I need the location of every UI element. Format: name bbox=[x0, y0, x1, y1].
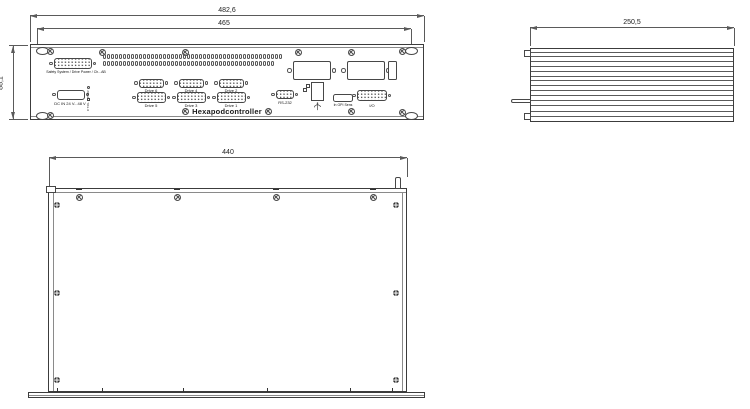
jack-screw-icon bbox=[172, 96, 176, 100]
vent-slot bbox=[147, 61, 150, 66]
edge-mark bbox=[267, 388, 268, 392]
vent-slot bbox=[159, 54, 162, 59]
vent-slot bbox=[103, 61, 106, 66]
vent-slot bbox=[279, 54, 282, 59]
dim-label: 465 bbox=[216, 20, 232, 27]
vent-slot bbox=[251, 61, 254, 66]
chassis-screw bbox=[76, 194, 83, 201]
technical-drawing-page: { "drawing": { "product_label": "Hexapod… bbox=[0, 0, 750, 409]
panel-screw bbox=[47, 112, 54, 119]
vent-slot bbox=[211, 54, 214, 59]
safety-system-connector bbox=[49, 58, 96, 69]
dim-label: 482,6 bbox=[216, 7, 238, 14]
safety-system-label: Safety System / Drive Power / Ch...AB bbox=[46, 71, 106, 75]
vent-slot bbox=[259, 61, 262, 66]
dsub15-body bbox=[217, 92, 246, 103]
ctrl-led-label: CTRL bbox=[87, 102, 90, 111]
jack-screw-icon bbox=[52, 93, 56, 97]
fin-line bbox=[531, 90, 733, 91]
drive-label: Drive 5 bbox=[145, 104, 158, 108]
chassis-screw bbox=[54, 202, 60, 208]
arrow-right-icon bbox=[404, 27, 411, 31]
chassis-screw bbox=[174, 194, 181, 201]
vent-slot bbox=[235, 61, 238, 66]
pwr-led-label: PWR bbox=[87, 90, 90, 98]
arrow-left-icon bbox=[49, 156, 56, 160]
vent-slot bbox=[199, 54, 202, 59]
vent-slot bbox=[247, 54, 250, 59]
vent-slot bbox=[167, 61, 170, 66]
fin-line bbox=[531, 80, 733, 81]
ctrl-led bbox=[87, 98, 90, 101]
extension-line bbox=[49, 158, 50, 186]
usb-icon bbox=[313, 102, 322, 111]
chassis-screw bbox=[370, 194, 377, 201]
rs232-port bbox=[271, 90, 298, 99]
panel-screw bbox=[399, 48, 406, 55]
chassis-screw bbox=[393, 377, 399, 383]
jack-screw-icon bbox=[93, 62, 97, 66]
vent-slot bbox=[163, 61, 166, 66]
jack-screw-icon bbox=[207, 96, 211, 100]
fin-line bbox=[531, 71, 733, 72]
drive-connector bbox=[172, 92, 210, 103]
vent-slot bbox=[203, 61, 206, 66]
chassis-line bbox=[531, 116, 733, 117]
fin-line bbox=[531, 56, 733, 57]
vent-slot bbox=[191, 54, 194, 59]
jack-screw-icon bbox=[165, 81, 169, 85]
extension-line bbox=[9, 119, 28, 120]
dsub15-body bbox=[357, 90, 387, 101]
gpi-label: In GPI Sens bbox=[334, 104, 353, 108]
edge-mark bbox=[350, 388, 351, 392]
vent-slot bbox=[187, 61, 190, 66]
vent-slot bbox=[227, 54, 230, 59]
side-view: 250,5 bbox=[500, 0, 750, 140]
vent-slot bbox=[131, 54, 134, 59]
vent-slot bbox=[255, 61, 258, 66]
fin-line bbox=[531, 85, 733, 86]
jack-screw-icon bbox=[247, 96, 251, 100]
vent-slot bbox=[139, 61, 142, 66]
edge-mark bbox=[174, 189, 180, 190]
arrow-left-icon bbox=[530, 26, 537, 30]
mounting-tab bbox=[524, 50, 531, 57]
vent-slot bbox=[191, 61, 194, 66]
chassis-screw bbox=[393, 202, 399, 208]
vent-slot bbox=[207, 54, 210, 59]
mounting-hole bbox=[405, 112, 418, 120]
motor-connector bbox=[287, 61, 336, 80]
vent-slot bbox=[131, 61, 134, 66]
motor-connector bbox=[341, 61, 390, 80]
bottom-chassis-outline bbox=[48, 188, 407, 392]
rear-pin bbox=[511, 99, 531, 103]
extension-line bbox=[530, 28, 531, 46]
vent-slot bbox=[231, 61, 234, 66]
fin-line bbox=[531, 95, 733, 96]
dim-front-overall-width: 482,6 bbox=[30, 9, 424, 16]
vent-slot bbox=[155, 61, 158, 66]
vent-slot bbox=[151, 54, 154, 59]
vent-slot bbox=[143, 61, 146, 66]
jack-screw-icon bbox=[245, 81, 249, 85]
vent-slot bbox=[255, 54, 258, 59]
vent-slot bbox=[227, 61, 230, 66]
cooling-fins bbox=[531, 56, 733, 106]
vent-slot bbox=[175, 61, 178, 66]
arrow-left-icon bbox=[37, 27, 44, 31]
corner-notch bbox=[46, 186, 56, 193]
jack-screw-icon bbox=[287, 68, 292, 73]
edge-mark bbox=[76, 189, 82, 190]
jack-screw-icon bbox=[214, 81, 218, 85]
arrow-right-icon bbox=[417, 14, 424, 18]
jack-screw-icon bbox=[174, 81, 178, 85]
vent-slot bbox=[251, 54, 254, 59]
panel-screw bbox=[348, 49, 355, 56]
jack-screw-icon bbox=[212, 96, 216, 100]
vent-slot bbox=[239, 61, 242, 66]
dsub9-body bbox=[219, 79, 244, 88]
io-port bbox=[352, 90, 391, 101]
jack-screw-icon bbox=[205, 81, 209, 85]
dim-label: 440 bbox=[220, 149, 236, 156]
rs232-label: RS-232 bbox=[278, 101, 292, 105]
vent-slot bbox=[267, 61, 270, 66]
dim-front-mount-width: 465 bbox=[37, 22, 411, 29]
drive-connector bbox=[134, 78, 168, 88]
vent-slot bbox=[203, 54, 206, 59]
panel-screw bbox=[399, 109, 406, 116]
vent-slot bbox=[147, 54, 150, 59]
vent-slot bbox=[243, 54, 246, 59]
vent-slot bbox=[211, 61, 214, 66]
vent-slot bbox=[219, 61, 222, 66]
vent-slot bbox=[267, 54, 270, 59]
dsub-body bbox=[57, 90, 85, 100]
dsub15-body bbox=[177, 92, 206, 103]
chassis-top-line bbox=[531, 52, 733, 53]
vent-slot bbox=[223, 54, 226, 59]
edge-mark bbox=[370, 189, 376, 190]
drive-connector bbox=[132, 92, 170, 103]
dsub9-body bbox=[276, 90, 294, 99]
rect-connector-body bbox=[347, 61, 385, 80]
arrow-down-icon bbox=[11, 112, 15, 119]
panel-screw bbox=[265, 108, 272, 115]
jack-screw-icon bbox=[352, 94, 356, 98]
jack-screw-icon bbox=[295, 93, 299, 97]
fin-line bbox=[531, 76, 733, 77]
pwr-led bbox=[87, 86, 90, 89]
dsub9-body bbox=[179, 79, 204, 88]
extension-line bbox=[734, 28, 735, 46]
vent-slot bbox=[215, 61, 218, 66]
vent-slot bbox=[123, 54, 126, 59]
vent-slot bbox=[183, 54, 186, 59]
jack-screw-icon bbox=[132, 96, 136, 100]
vent-slot bbox=[259, 54, 262, 59]
vent-slot bbox=[187, 54, 190, 59]
extension-line bbox=[407, 158, 408, 177]
vent-slot bbox=[171, 54, 174, 59]
front-view: 482,6 465 88,1 Safety bbox=[0, 0, 470, 130]
mounting-tab bbox=[524, 113, 531, 120]
edge-mark bbox=[57, 388, 58, 392]
vent-slot bbox=[139, 54, 142, 59]
mounting-hole bbox=[405, 47, 418, 55]
chassis-inner-line bbox=[402, 192, 403, 391]
vent-slot bbox=[127, 61, 130, 66]
vent-slot bbox=[123, 61, 126, 66]
dim-bottom-width: 440 bbox=[49, 151, 407, 158]
vent-slot bbox=[107, 54, 110, 59]
vent-slot bbox=[215, 54, 218, 59]
dsub9-body bbox=[139, 79, 164, 88]
vent-slot bbox=[231, 54, 234, 59]
dc-in-label: DC IN 24 V...48 V bbox=[54, 102, 85, 106]
drive-connector bbox=[174, 78, 208, 88]
vent-slot bbox=[111, 54, 114, 59]
vent-slot bbox=[263, 54, 266, 59]
product-title: Hexapodcontroller bbox=[192, 107, 262, 116]
flange-inner-line bbox=[29, 395, 424, 396]
vent-slot bbox=[263, 61, 266, 66]
vent-slot bbox=[107, 61, 110, 66]
chassis-screw bbox=[393, 290, 399, 296]
vent-slot bbox=[143, 54, 146, 59]
usb-port bbox=[311, 82, 324, 101]
arrow-right-icon bbox=[400, 156, 407, 160]
vent-slot bbox=[119, 54, 122, 59]
vent-slot bbox=[111, 61, 114, 66]
jack-screw-icon bbox=[388, 94, 392, 98]
dim-label: 250,5 bbox=[621, 19, 643, 26]
vent-slot bbox=[247, 61, 250, 66]
chassis-screw bbox=[54, 290, 60, 296]
dc-in-connector bbox=[52, 89, 89, 100]
dsub15-body bbox=[137, 92, 166, 103]
jack-screw-icon bbox=[341, 68, 346, 73]
vent-slot bbox=[103, 54, 106, 59]
panel-bottom-inner-line bbox=[31, 116, 423, 117]
vent-slot bbox=[271, 54, 274, 59]
jack-screw-icon bbox=[49, 62, 53, 66]
vent-slot bbox=[159, 61, 162, 66]
jack-screw-icon bbox=[332, 68, 337, 73]
rect-connector-body bbox=[293, 61, 331, 80]
chassis-screw bbox=[273, 194, 280, 201]
io-label: I/O bbox=[369, 104, 374, 108]
power-switch bbox=[388, 61, 397, 80]
vent-slot bbox=[115, 54, 118, 59]
dim-side-depth: 250,5 bbox=[530, 21, 734, 28]
vent-slot bbox=[171, 61, 174, 66]
vent-slot bbox=[239, 54, 242, 59]
vent-slot bbox=[243, 61, 246, 66]
led-square bbox=[303, 88, 307, 92]
bottom-view: 440 bbox=[0, 145, 450, 409]
edge-mark bbox=[273, 189, 279, 190]
panel-screw bbox=[182, 108, 189, 115]
vent-slot bbox=[223, 61, 226, 66]
panel-screw bbox=[47, 48, 54, 55]
panel-screw bbox=[295, 49, 302, 56]
vent-slot bbox=[179, 54, 182, 59]
vent-slot bbox=[167, 54, 170, 59]
vent-grille bbox=[102, 53, 282, 66]
fin-line bbox=[531, 61, 733, 62]
fin-line bbox=[531, 100, 733, 101]
vent-slot bbox=[179, 61, 182, 66]
vent-slot bbox=[135, 61, 138, 66]
gpi-port bbox=[333, 94, 353, 102]
vent-slot bbox=[135, 54, 138, 59]
dsub25-body bbox=[54, 58, 92, 69]
panel-screw bbox=[348, 108, 355, 115]
arrow-left-icon bbox=[30, 14, 37, 18]
vent-slot bbox=[195, 61, 198, 66]
chassis-line bbox=[531, 111, 733, 112]
vent-slot bbox=[195, 54, 198, 59]
drive-connector bbox=[212, 92, 250, 103]
vent-slot bbox=[163, 54, 166, 59]
drive-connector bbox=[214, 78, 248, 88]
vent-slot bbox=[183, 61, 186, 66]
jack-screw-icon bbox=[134, 81, 138, 85]
edge-mark bbox=[183, 388, 184, 392]
vent-slot bbox=[155, 54, 158, 59]
vent-slot bbox=[175, 54, 178, 59]
dim-front-height: 88,1 bbox=[13, 46, 14, 119]
extension-line bbox=[424, 16, 425, 42]
vent-slot bbox=[219, 54, 222, 59]
vent-slot bbox=[151, 61, 154, 66]
jack-screw-icon bbox=[271, 93, 275, 97]
panel-top-inner-line bbox=[31, 47, 423, 48]
extension-line bbox=[30, 16, 31, 42]
edge-mark bbox=[392, 388, 393, 392]
chassis-screw bbox=[54, 377, 60, 383]
fin-line bbox=[531, 105, 733, 106]
vent-slot bbox=[119, 61, 122, 66]
arrow-up-icon bbox=[11, 46, 15, 53]
vent-slot bbox=[127, 54, 130, 59]
vent-slot bbox=[199, 61, 202, 66]
edge-mark bbox=[102, 388, 103, 392]
vent-slot bbox=[275, 54, 278, 59]
dim-label: 88,1 bbox=[0, 74, 5, 92]
rear-tab bbox=[395, 177, 401, 189]
vent-slot bbox=[271, 61, 274, 66]
jack-screw-icon bbox=[167, 96, 171, 100]
arrow-right-icon bbox=[727, 26, 734, 30]
chassis-inner-line bbox=[49, 192, 406, 193]
vent-slot bbox=[207, 61, 210, 66]
extension-line bbox=[9, 45, 28, 46]
vent-slot bbox=[235, 54, 238, 59]
vent-slot bbox=[115, 61, 118, 66]
fin-line bbox=[531, 66, 733, 67]
